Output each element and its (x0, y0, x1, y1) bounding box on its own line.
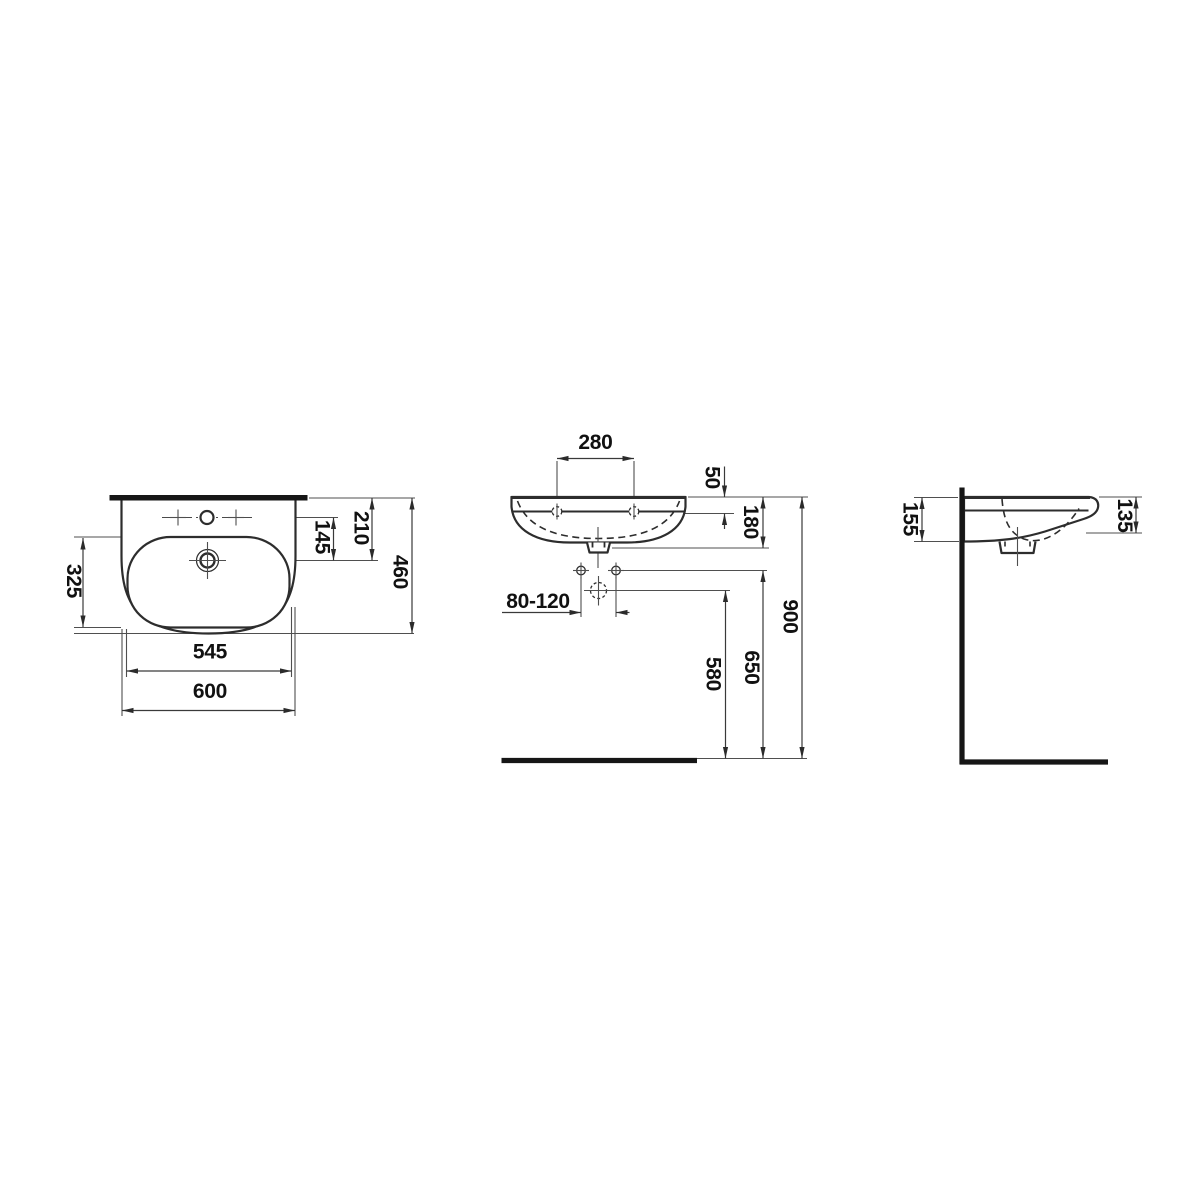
wall-line (110, 495, 308, 501)
dim-label-900: 900 (778, 599, 801, 633)
tap-hole (201, 511, 214, 524)
dim-label-135: 135 (1113, 498, 1136, 533)
dim-label-460: 460 (388, 555, 411, 589)
dim-label-325: 325 (62, 564, 85, 599)
dim-label-210: 210 (349, 511, 372, 545)
dim-label-145: 145 (310, 520, 333, 555)
dim-label-580: 580 (701, 657, 724, 691)
dim-label-180: 180 (739, 505, 762, 539)
technical-drawing-page: 325 145 210 460 545 600 (0, 0, 1200, 1200)
dim-label-650: 650 (740, 650, 763, 684)
dim-label-50: 50 (700, 466, 723, 489)
dim-label-545: 545 (193, 641, 228, 664)
drain-fitting (587, 543, 610, 553)
dim-label-155: 155 (898, 502, 921, 537)
dim-label-600: 600 (193, 680, 227, 703)
washbasin-dimension-drawing: 325 145 210 460 545 600 (0, 0, 1200, 1200)
dim-label-280: 280 (578, 431, 612, 454)
dim-label-80-120: 80-120 (506, 590, 570, 613)
